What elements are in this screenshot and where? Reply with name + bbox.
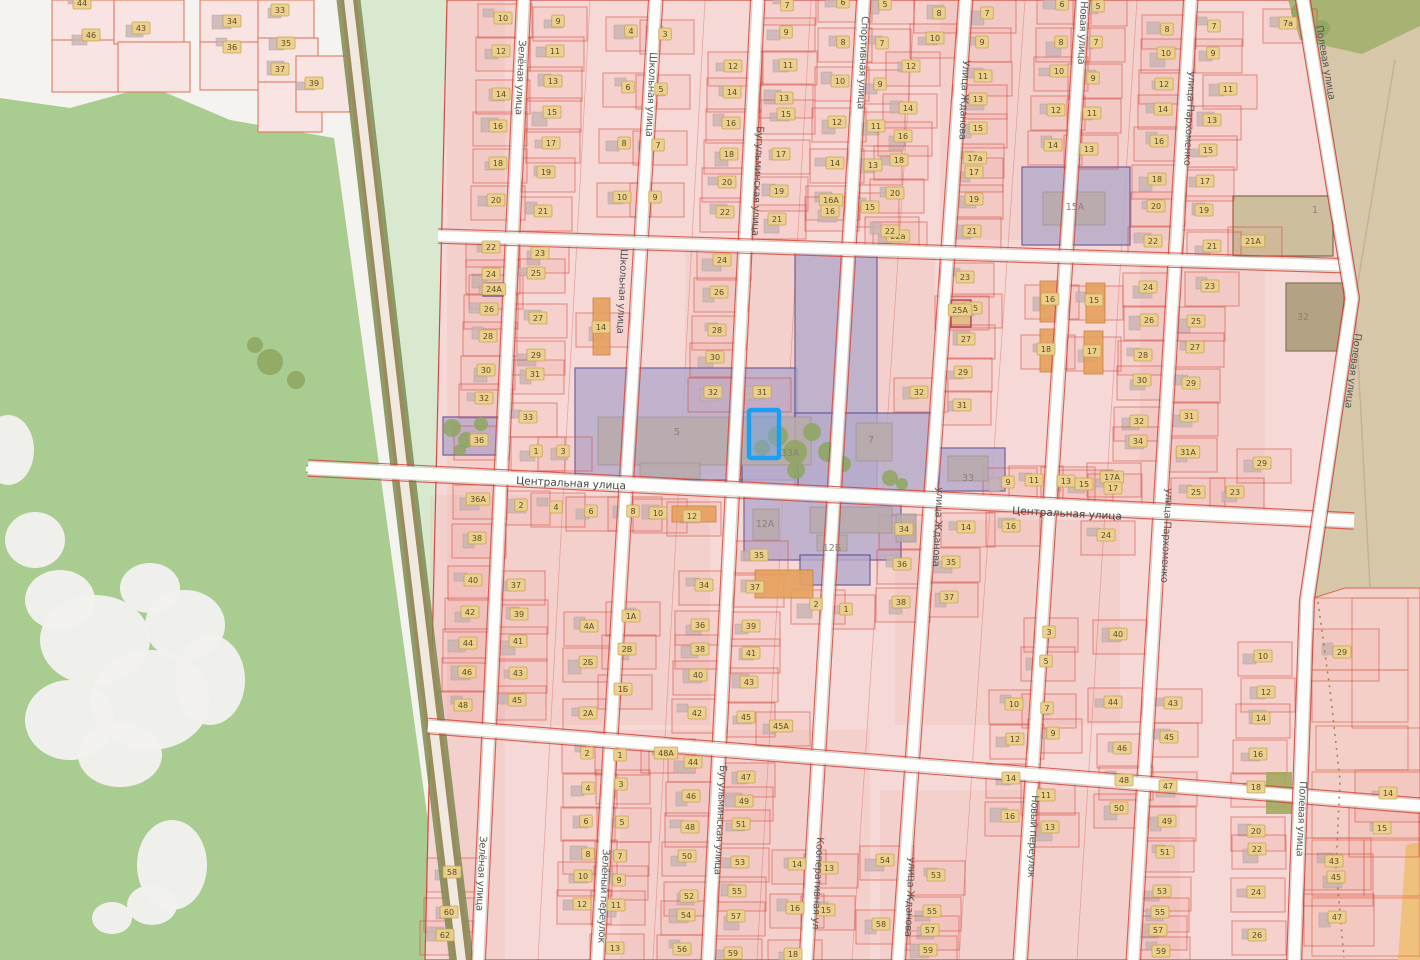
parcel-number: 50 xyxy=(1114,804,1124,813)
parcel-number: 25 xyxy=(1191,488,1201,497)
parcel-number: 6 xyxy=(583,817,588,826)
parcel-number: 46 xyxy=(86,31,96,40)
parcel-number: 24 xyxy=(717,256,727,265)
parcel-number: 13 xyxy=(779,94,789,103)
parcel-number: 9 xyxy=(783,28,788,37)
parcel-number: 3 xyxy=(560,447,565,456)
parcel-number: 19 xyxy=(969,195,979,204)
parcel-number: 9 xyxy=(652,193,657,202)
building-label: 7 xyxy=(868,435,874,446)
parcel-number: 29 xyxy=(1186,379,1196,388)
parcel-number: 40 xyxy=(468,576,478,585)
parcel-number: 45А xyxy=(773,722,789,731)
parcel-number: 38 xyxy=(695,645,705,654)
parcel-number: 23 xyxy=(1230,488,1240,497)
parcel-number: 15 xyxy=(1089,296,1099,305)
parcel-number: 16А xyxy=(823,196,839,205)
parcel-number: 15 xyxy=(781,110,791,119)
parcel-number: 1 xyxy=(843,605,848,614)
parcel-number: 29 xyxy=(531,351,541,360)
building-label: 15А xyxy=(1066,202,1085,213)
parcel-number: 20 xyxy=(1151,202,1161,211)
parcel-number: 35 xyxy=(281,39,291,48)
parcel-number: 25 xyxy=(531,269,541,278)
parcel-number: 17 xyxy=(1200,177,1210,186)
parcel-number: 31 xyxy=(757,388,767,397)
parcel-number: 42 xyxy=(692,709,702,718)
parcel-number: 43 xyxy=(744,678,754,687)
parcel-number: 22 xyxy=(720,208,730,217)
parcel-number: 23 xyxy=(535,249,545,258)
building-footprint xyxy=(563,900,574,910)
parcel-number: 22 xyxy=(885,227,895,236)
parcel-number: 42 xyxy=(465,608,475,617)
parcel-number: 7 xyxy=(984,9,989,18)
building-footprint xyxy=(483,9,494,17)
parcel-number: 31 xyxy=(530,370,540,379)
parcel-number: 48 xyxy=(458,701,468,710)
parcel-number: 16 xyxy=(1005,812,1015,821)
parcel-number: 15 xyxy=(547,108,557,117)
parcel-number: 36 xyxy=(695,621,705,630)
parcel-number: 15 xyxy=(1079,480,1089,489)
parcel-number: 19 xyxy=(541,168,551,177)
parcel-number: 54 xyxy=(880,856,890,865)
parcel-number: 40 xyxy=(1113,630,1123,639)
parcel-number: 24 xyxy=(1251,888,1261,897)
parcel-number: 56 xyxy=(677,945,687,954)
parcel-number: 31А xyxy=(1180,448,1196,457)
field-clearing xyxy=(5,512,65,568)
parcel-number: 8 xyxy=(936,9,941,18)
parcel-number: 34 xyxy=(1133,437,1143,446)
parcel-number: 27 xyxy=(1190,343,1200,352)
parcel-number: 25 xyxy=(1191,317,1201,326)
parcel-number: 19 xyxy=(774,187,784,196)
parcel-number: 8 xyxy=(630,507,635,516)
parcel-number: 18 xyxy=(894,156,904,165)
parcel-number: 7 xyxy=(1044,704,1049,713)
parcel-number: 29 xyxy=(1257,459,1267,468)
parcel-number: 13 xyxy=(824,864,834,873)
parcel-number: 32 xyxy=(914,388,924,397)
parcel-number: 16 xyxy=(790,904,800,913)
parcel-number: 37 xyxy=(511,581,521,590)
parcel-number: 3 xyxy=(1046,628,1051,637)
parcel-number: 29 xyxy=(1337,648,1347,657)
parcel-number: 49 xyxy=(739,797,749,806)
parcel-number: 20 xyxy=(1251,827,1261,836)
parcel-number: 16 xyxy=(1253,750,1263,759)
parcel-number: 14 xyxy=(1048,141,1058,150)
parcel-number: 12 xyxy=(832,118,842,127)
parcel-number: 12 xyxy=(496,47,506,56)
parcel-number: 54 xyxy=(681,911,691,920)
field-clearing xyxy=(92,902,132,934)
parcel-number: 16 xyxy=(1045,295,1055,304)
parcel-number: 18 xyxy=(724,150,734,159)
parcel-number: 31 xyxy=(957,401,967,410)
parcel-number: 37 xyxy=(944,593,954,602)
parcel-number: 32 xyxy=(479,394,489,403)
parcel-number: 34 xyxy=(699,581,709,590)
tree-blob xyxy=(257,349,283,375)
parcel-number: 35 xyxy=(946,558,956,567)
parcel-number: 11 xyxy=(871,122,881,131)
parcel-number: 5 xyxy=(1043,657,1048,666)
parcel-number: 48 xyxy=(685,823,695,832)
parcel-number: 52 xyxy=(684,892,694,901)
parcel-number: 14 xyxy=(830,159,840,168)
parcel-number: 33 xyxy=(275,6,285,15)
parcel-number: 5 xyxy=(619,818,624,827)
parcel-number: 2Б xyxy=(583,658,594,667)
parcel-number: 7а xyxy=(1283,19,1293,28)
parcel-number: 7 xyxy=(879,39,884,48)
parcel-number: 9 xyxy=(1005,478,1010,487)
parcel-number: 45 xyxy=(741,713,751,722)
map-canvas[interactable]: 101214161820222424А262830323636А38404244… xyxy=(0,0,1420,960)
parcel-number: 17 xyxy=(776,150,786,159)
parcel-number: 28 xyxy=(1138,351,1148,360)
parcel-number: 20 xyxy=(491,196,501,205)
parcel-number: 55 xyxy=(732,887,742,896)
field-clearing xyxy=(25,570,95,630)
parcel-number: 11 xyxy=(978,72,988,81)
parcel-number: 55 xyxy=(1155,908,1165,917)
building-label: 32 xyxy=(1297,312,1309,323)
tree-blob xyxy=(474,417,488,431)
parcel-number: 33 xyxy=(523,413,533,422)
parcel-number: 36 xyxy=(897,560,907,569)
parcel-number: 43 xyxy=(1329,857,1339,866)
parcel-number: 7 xyxy=(1093,38,1098,47)
parcel-number: 45 xyxy=(1164,733,1174,742)
parcel-number: 16 xyxy=(1006,522,1016,531)
parcel-number: 39 xyxy=(514,610,524,619)
building-footprint xyxy=(606,141,619,151)
parcel-number: 3 xyxy=(618,780,623,789)
parcel-number: 15 xyxy=(973,124,983,133)
parcel-number: 29 xyxy=(958,368,968,377)
parcel-number: 45 xyxy=(512,696,522,705)
parcel-number: 1Б xyxy=(618,685,629,694)
parcel-number: 8 xyxy=(1164,25,1169,34)
parcel-number: 24 xyxy=(1143,283,1153,292)
parcel-number: 28 xyxy=(483,332,493,341)
parcel-number: 1 xyxy=(617,751,622,760)
parcel-number: 8 xyxy=(585,850,590,859)
parcel-number: 36 xyxy=(227,43,237,52)
parcel-number: 23 xyxy=(1205,282,1215,291)
parcel-number: 44 xyxy=(77,0,87,8)
parcel-number: 7 xyxy=(784,1,789,10)
parcel-number: 47 xyxy=(1163,782,1173,791)
parcel-number: 43 xyxy=(513,669,523,678)
parcel-number: 14 xyxy=(961,523,971,532)
parcel-number: 40 xyxy=(693,671,703,680)
parcel-number: 10 xyxy=(1054,67,1064,76)
parcel-number: 53 xyxy=(1157,887,1167,896)
parcel-number: 2 xyxy=(518,501,523,510)
parcel-number: 26 xyxy=(484,305,494,314)
parcel-number: 10 xyxy=(1258,652,1268,661)
parcel-number: 1 xyxy=(533,447,538,456)
parcel-number: 16 xyxy=(726,119,736,128)
parcel-number: 32 xyxy=(1134,417,1144,426)
parcel-number: 10 xyxy=(578,872,588,881)
parcel-number: 2 xyxy=(813,600,818,609)
parcel-number: 62 xyxy=(440,931,450,940)
parcel-number: 14 xyxy=(1158,105,1168,114)
parcel-number: 9 xyxy=(877,80,882,89)
parcel-number: 16 xyxy=(1154,137,1164,146)
parcel-number: 8 xyxy=(621,139,626,148)
building-footprint xyxy=(1043,0,1056,9)
parcel-number: 43 xyxy=(136,24,146,33)
field-clearing xyxy=(78,723,162,787)
parcel-number: 24 xyxy=(1101,531,1111,540)
parcel-number: 12 xyxy=(906,62,916,71)
parcel-number: 37 xyxy=(275,65,285,74)
parcel-number: 14 xyxy=(1256,714,1266,723)
parcel-number: 34 xyxy=(227,17,237,26)
parcel-number: 6 xyxy=(840,0,845,7)
parcel-number: 28 xyxy=(712,326,722,335)
parcel-number: 15 xyxy=(865,203,875,212)
parcel-number: 10 xyxy=(653,509,663,518)
parcel-number: 26 xyxy=(1144,316,1154,325)
parcel-number: 13 xyxy=(1207,116,1217,125)
parcel-number: 6 xyxy=(625,83,630,92)
building-footprint xyxy=(868,0,879,14)
parcel-number: 44 xyxy=(1108,698,1118,707)
parcel-number: 13 xyxy=(1045,823,1055,832)
parcel-number: 18 xyxy=(493,159,503,168)
parcel-number: 59 xyxy=(923,946,933,955)
parcel-number: 49 xyxy=(1162,817,1172,826)
parcel-number: 13 xyxy=(610,944,620,953)
farm-parcel[interactable] xyxy=(1286,283,1344,351)
selected-parcel[interactable] xyxy=(749,410,779,458)
building-footprint xyxy=(536,47,547,57)
parcel-number: 35 xyxy=(754,551,764,560)
parcel-number: 5 xyxy=(1095,2,1100,11)
parcel-number: 8 xyxy=(1058,38,1063,47)
parcel-number: 18 xyxy=(1041,345,1051,354)
tree-blob xyxy=(882,470,898,486)
parcel-number: 22 xyxy=(1148,237,1158,246)
parcel-number: 47 xyxy=(741,773,751,782)
parcel-number: 18 xyxy=(788,950,798,959)
parcel-number: 14 xyxy=(596,323,606,332)
tree-blob xyxy=(443,419,461,437)
tree-blob xyxy=(287,371,305,389)
parcel-number: 16 xyxy=(825,207,835,216)
tree-blob xyxy=(787,461,805,479)
parcel-number: 26 xyxy=(714,288,724,297)
parcel[interactable] xyxy=(118,42,190,92)
parcel-number: 9 xyxy=(555,17,560,26)
building-label: 33А xyxy=(781,448,800,459)
parcel-number: 57 xyxy=(1153,926,1163,935)
parcel-number: 10 xyxy=(1161,49,1171,58)
parcel-number: 10 xyxy=(1009,700,1019,709)
parcel-number: 11 xyxy=(1087,109,1097,118)
parcel-number: 38 xyxy=(896,598,906,607)
parcel-number: 41 xyxy=(746,649,756,658)
parcel-number: 13 xyxy=(868,161,878,170)
parcel-number: 15 xyxy=(1203,146,1213,155)
parcel-number: 13 xyxy=(1084,145,1094,154)
parcel-number: 1А xyxy=(626,612,637,621)
building-footprint xyxy=(1196,17,1207,25)
parcel-number: 51 xyxy=(1160,848,1170,857)
parcel-number: 10 xyxy=(617,193,627,202)
parcel-number: 45 xyxy=(1331,873,1341,882)
parcel-number: 18 xyxy=(1152,175,1162,184)
parcel-number: 17 xyxy=(1087,347,1097,356)
parcel-number: 14 xyxy=(1383,789,1393,798)
tree-blob xyxy=(454,444,466,456)
parcel-number: 46 xyxy=(686,792,696,801)
parcel-number: 59 xyxy=(728,949,738,958)
parcel-number: 18 xyxy=(1251,783,1261,792)
parcel-number: 31 xyxy=(1184,412,1194,421)
parcel-number: 2В xyxy=(622,645,633,654)
parcel-number: 4 xyxy=(628,27,633,36)
parcel-number: 44 xyxy=(463,639,473,648)
parcel-number: 27 xyxy=(533,314,543,323)
building-label: 33 xyxy=(962,473,974,484)
parcel-number: 53 xyxy=(931,871,941,880)
parcel-number: 47 xyxy=(1332,913,1342,922)
parcel-number: 21 xyxy=(967,227,977,236)
parcel-number: 55 xyxy=(927,907,937,916)
parcel-number: 12 xyxy=(1261,688,1271,697)
parcel-number: 25А xyxy=(952,306,968,315)
parcel-number: 23 xyxy=(960,273,970,282)
building-footprint xyxy=(870,222,881,234)
parcel-number: 36 xyxy=(474,436,484,445)
parcel-number: 30 xyxy=(710,353,720,362)
parcel-number: 7 xyxy=(1211,22,1216,31)
parcel-number: 9 xyxy=(1210,49,1215,58)
parcel-number: 17 xyxy=(546,139,556,148)
tree-blob xyxy=(803,423,821,441)
parcel-number: 58 xyxy=(447,868,457,877)
parcel-number: 46 xyxy=(462,668,472,677)
parcel-number: 36А xyxy=(470,495,486,504)
building-footprint xyxy=(1147,22,1160,34)
parcel-number: 14 xyxy=(792,860,802,869)
parcel-number: 51 xyxy=(736,820,746,829)
parcel-number: 30 xyxy=(1137,376,1147,385)
field-clearing xyxy=(127,885,177,925)
parcel-number: 14 xyxy=(1006,774,1016,783)
parcel-number: 37 xyxy=(750,583,760,592)
parcel-number: 38 xyxy=(472,534,482,543)
building-footprint xyxy=(1129,316,1140,330)
parcel-number: 17 xyxy=(969,168,979,177)
parcel-number: 19 xyxy=(1199,206,1209,215)
parcel-number: 21 xyxy=(772,215,782,224)
parcel-number: 14 xyxy=(727,88,737,97)
parcel-number: 13 xyxy=(548,77,558,86)
parcel-number: 2 xyxy=(584,749,589,758)
parcel-number: 12 xyxy=(687,512,697,521)
parcel-number: 10 xyxy=(930,34,940,43)
parcel-number: 17а xyxy=(967,154,982,163)
parcel-number: 16 xyxy=(493,122,503,131)
parcel-number: 10 xyxy=(498,14,508,23)
parcel-number: 4 xyxy=(553,503,558,512)
parcel[interactable] xyxy=(52,40,120,92)
parcel-number: 57 xyxy=(925,926,935,935)
parcel-number: 58 xyxy=(876,920,886,929)
parcel-number: 2А xyxy=(583,709,594,718)
parcel-number: 32 xyxy=(708,388,718,397)
parcel-number: 7 xyxy=(617,852,622,861)
parcel-number: 24А xyxy=(486,285,502,294)
parcel-number: 34 xyxy=(899,525,909,534)
parcel-number: 21 xyxy=(538,207,548,216)
building-footprint xyxy=(537,498,548,506)
parcel-number: 5 xyxy=(658,85,663,94)
parcel-number: 41 xyxy=(513,637,523,646)
parcel-number: 22 xyxy=(1252,845,1262,854)
parcel-number: 11 xyxy=(1223,85,1233,94)
parcel-number: 60 xyxy=(444,908,454,917)
parcel-number: 15 xyxy=(1377,824,1387,833)
tree-blob xyxy=(896,478,908,490)
parcel-number: 20 xyxy=(722,178,732,187)
building-footprint xyxy=(989,478,1000,492)
parcel-number: 9 xyxy=(616,876,621,885)
parcel-number: 21А xyxy=(1245,237,1261,246)
parcel-number: 16 xyxy=(898,132,908,141)
parcel-number: 17А xyxy=(1104,473,1120,482)
building-footprint xyxy=(767,30,780,40)
parcel-number: 4 xyxy=(585,784,590,793)
parcel-number: 46 xyxy=(1117,744,1127,753)
tree-blob xyxy=(247,337,263,353)
parcel-number: 7 xyxy=(655,141,660,150)
parcel-number: 5 xyxy=(882,0,887,9)
parcel-number: 11 xyxy=(783,61,793,70)
parcel-number: 12 xyxy=(728,62,738,71)
parcel-number: 39 xyxy=(309,79,319,88)
field-clearing xyxy=(175,635,245,725)
parcel-number: 9 xyxy=(1050,729,1055,738)
parcel-number: 10 xyxy=(835,77,845,86)
building-label: 1 xyxy=(1312,205,1318,216)
building-large xyxy=(810,507,892,533)
building-label: 5 xyxy=(674,427,680,438)
parcel-number: 48А xyxy=(658,749,674,758)
parcel-number: 48 xyxy=(1119,776,1129,785)
parcel-number: 8 xyxy=(840,38,845,47)
parcel-number: 50 xyxy=(682,852,692,861)
building-label: 12Б xyxy=(823,543,842,554)
parcel-number: 43 xyxy=(1168,699,1178,708)
parcel-number: 14 xyxy=(903,104,913,113)
parcel-number: 39 xyxy=(746,622,756,631)
parcel-number: 17 xyxy=(1108,484,1118,493)
parcel-number: 11 xyxy=(1029,476,1039,485)
building-label: 12А xyxy=(756,519,775,530)
parcel-number: 13 xyxy=(973,95,983,104)
